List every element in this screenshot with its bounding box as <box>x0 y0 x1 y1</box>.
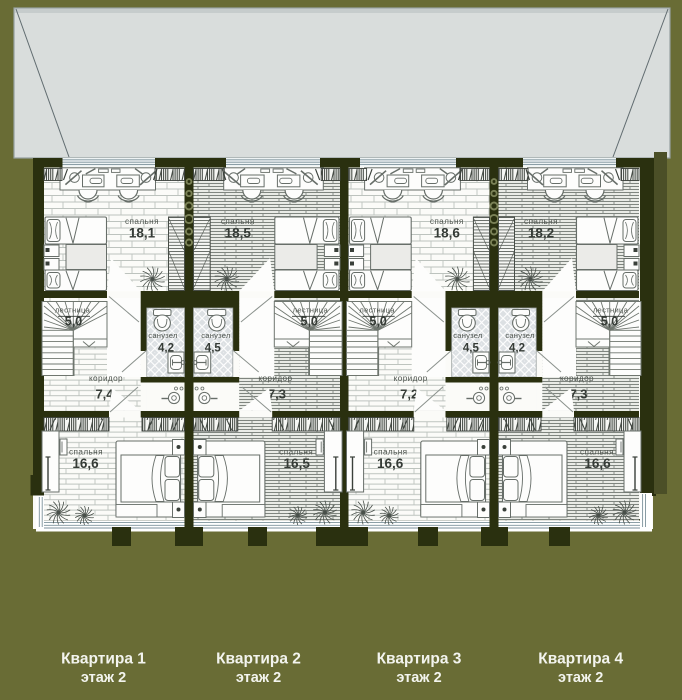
svg-text:этаж 2: этаж 2 <box>236 670 281 686</box>
svg-text:коридор: коридор <box>394 374 428 383</box>
svg-text:18,6: 18,6 <box>434 226 461 241</box>
svg-text:коридор: коридор <box>258 374 292 383</box>
svg-text:лестница: лестница <box>293 306 329 315</box>
svg-text:5,0: 5,0 <box>301 315 318 329</box>
svg-text:лестница: лестница <box>359 306 395 315</box>
svg-text:16,6: 16,6 <box>72 456 99 471</box>
svg-text:5,0: 5,0 <box>601 315 618 329</box>
svg-text:этаж 2: этаж 2 <box>558 670 603 686</box>
svg-text:16,5: 16,5 <box>284 456 311 471</box>
svg-text:16,6: 16,6 <box>584 456 611 471</box>
svg-text:4,2: 4,2 <box>158 343 174 355</box>
svg-text:санузел: санузел <box>453 331 482 340</box>
svg-text:5,0: 5,0 <box>369 315 386 329</box>
svg-text:5,0: 5,0 <box>65 315 82 329</box>
svg-text:коридор: коридор <box>89 374 123 383</box>
svg-text:лестница: лестница <box>55 306 91 315</box>
svg-text:4,5: 4,5 <box>205 343 222 355</box>
svg-text:лестница: лестница <box>593 306 629 315</box>
svg-text:Квартира 2: Квартира 2 <box>216 651 301 668</box>
svg-text:этаж 2: этаж 2 <box>81 670 126 686</box>
svg-text:Квартира 1: Квартира 1 <box>61 651 146 668</box>
svg-text:4,2: 4,2 <box>509 343 525 355</box>
svg-text:18,5: 18,5 <box>225 226 252 241</box>
svg-text:18,2: 18,2 <box>528 226 554 241</box>
svg-text:Квартира 4: Квартира 4 <box>538 651 623 668</box>
svg-text:18,1: 18,1 <box>129 226 156 241</box>
svg-text:санузел: санузел <box>201 331 230 340</box>
svg-text:санузел: санузел <box>148 331 177 340</box>
svg-text:санузел: санузел <box>505 331 534 340</box>
svg-text:коридор: коридор <box>560 374 594 383</box>
svg-text:4,5: 4,5 <box>463 343 480 355</box>
svg-text:16,6: 16,6 <box>377 456 404 471</box>
svg-text:этаж 2: этаж 2 <box>396 670 441 686</box>
svg-text:Квартира 3: Квартира 3 <box>377 651 462 668</box>
